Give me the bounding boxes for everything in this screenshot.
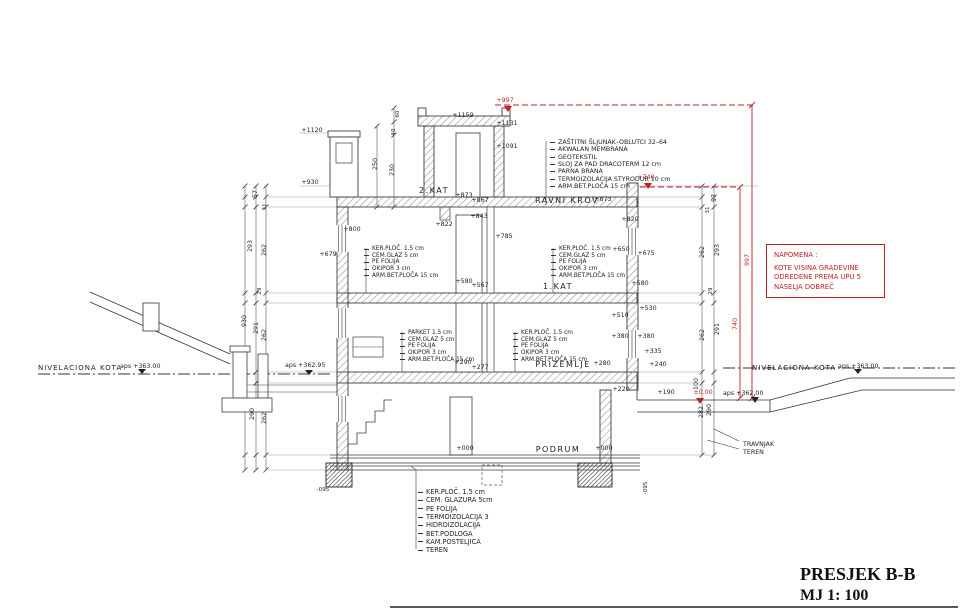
legend-item: CEM.GLAZ 5 cm [513,337,587,344]
room-podrum: PODRUM [536,445,581,454]
level-567: +567 [471,282,488,289]
drawing-scale: MJ 1: 100 [800,587,916,605]
legend-item: PE FOLIJA [400,343,474,350]
level-240: +240 [649,361,666,368]
legend-item: PE FOLIJA [513,343,587,350]
level-277: +277 [471,364,488,371]
level-000-right: +000 [595,445,612,452]
dim-291-left: 291 [253,322,260,334]
dim-262-left-a: 262 [261,244,268,256]
room-1kat: 1.KAT [543,282,573,291]
roof-buildup-legend: ZAŠTITNI ŠLJUNAK–OBLUTCI 32–64AKWALAN ME… [550,139,670,190]
floor-buildup-legend-1kat-right: KER.PLOČ. 1.5 cmCEM.GLAZ 5 cmPE FOLIJAOK… [551,246,625,279]
legend-item: PE FOLIJA [551,259,625,266]
strip-footing-dashed [482,465,502,485]
floor-slab-prizemlje [337,372,637,383]
level-380-a: +380 [611,333,628,340]
level-820: +820 [621,216,638,223]
dim-930: 930 [241,315,248,327]
dim-40: 40 [391,128,397,136]
legend-item: HIDROIZOLACIJA [418,521,493,529]
niv-right-value: aps +363.00 [838,363,878,370]
floor-buildup-legend-prizemlje-right: KER.PLOČ. 1.5 cmCEM.GLAZ 5 cmPE FOLIJAOK… [513,330,587,363]
level-580-right: +580 [631,280,648,287]
dim-57-left: 57 [252,190,259,198]
legend-item: PE FOLIJA [364,259,438,266]
aps-362-95: aps +362.95 [285,362,325,369]
footing-left [326,463,352,487]
dim-31-left: 31 [262,203,268,211]
footing-right [578,463,612,487]
legend-item: KOTE VISINA GRADEVINE [774,264,878,274]
level-1091: +1091 [496,143,517,150]
legend-item: PE FOLIJA [418,505,493,513]
legend-item: OKIPOR 3 cm [400,350,474,357]
beam [440,207,450,220]
legend-item: AKWALAN MEMBRANA [550,146,670,153]
level-997: +997 [496,97,513,104]
legend-item: KER.PLOČ. 1.5 cm [513,330,587,337]
legend-item: NAPOMENA : [774,251,878,261]
level-m095-right: -095 [643,481,649,494]
level-785: +785 [495,233,512,240]
legend-item: CEM.GLAZ 5 cm [551,253,625,260]
level-822: +822 [435,221,452,228]
legend-item: TERMOIZOLACIJA STYRODUR 10 cm [550,175,670,182]
basement-right-wall [600,390,611,463]
level-190: +190 [657,389,674,396]
sheet: +1120+930+1159+1131+1091+997+74025023060… [0,0,960,614]
podrum-stair [348,400,392,455]
legend-item: BET.PODLOGA [418,529,493,537]
level-1120: +1120 [301,127,322,134]
drawing-title: PRESJEK B-B [800,564,916,585]
dim-31-right: 31 [705,206,711,214]
niv-left-label: NIVELACIONA KOTA [38,364,122,372]
niv-left-value: aps +363.00 [120,363,160,370]
interior-wall-1kat [487,207,494,293]
level-675: +675 [637,250,654,257]
level-380-b: +380 [637,333,654,340]
legend-item: PARNA BRANA [550,168,670,175]
legend-item: ARM.BET.PLOČA 15 cm [400,356,474,363]
room-2kat: 2.KAT [419,186,449,195]
dim-290-left: 290 [249,408,256,420]
label-teren: TEREN [742,449,764,456]
legend-item: ZAŠTITNI ŠLJUNAK–OBLUTCI 32–64 [550,139,670,146]
penthouse-right-wall [494,126,504,197]
level-510: +510 [611,312,628,319]
dim-60: 60 [395,110,401,118]
floor-buildup-legend-1kat-left: KER.PLOČ. 1.5 cmCEM.GLAZ 5 cmPE FOLIJAOK… [364,246,438,279]
legend-item: TERMOIZOLACIJA 3 [418,513,493,521]
legend-item: ARM.BET.PLOČA 15 cm [364,272,438,279]
legend-item: GEOTEKSTIL [550,154,670,161]
legend-item: PARKET 1.5 cm [400,330,474,337]
retaining-wall [222,346,337,412]
legend-item: ODREDENE PREMA UPU 5 [774,273,878,283]
dim-29-left: 29 [257,287,263,295]
level-000-left: +000 [456,445,473,452]
niv-right-label: NIVELACIONA KOTA [752,364,836,372]
dim-997: 997 [744,254,751,266]
chimney-cap [328,131,360,137]
level-930: +930 [301,179,318,186]
dim-250: 250 [372,158,379,170]
level-280: +280 [593,360,610,367]
legend-item: KAM.POSTELJICA [418,538,493,546]
dim-291-right: 291 [714,323,721,335]
title-block: PRESJEK B-B MJ 1: 100 [800,564,916,605]
room-ravni-krov: RAVNI KROV [535,196,599,205]
legend-item: ARM.BET.PLOČA 15 cm [551,272,625,279]
interior-wall-prizemlje [487,303,494,372]
dim-262-right-a: 262 [699,246,706,258]
level-1131: +1131 [496,120,517,127]
legend-item: CEM.GLAZ 5 cm [400,337,474,344]
level-580-left: +580 [455,278,472,285]
dim-262-right-b: 262 [699,329,706,341]
dim-57-right: 57 [711,194,718,202]
penthouse-door [456,133,480,197]
dim-262-left-c: 262 [261,412,268,424]
dim-293-left: 293 [247,240,254,252]
note-box: NAPOMENA :KOTE VISINA GRADEVINEODREDENE … [766,244,885,298]
dim-282: 282 [698,406,705,418]
legend-item: OKIPOR 3 cm [513,350,587,357]
legend-item: ARM.BET.PLOČA 15 cm [513,356,587,363]
level-873: +873 [455,192,472,199]
legend-item: SLOJ ZA PAD DRACOTERM 12 cm [550,161,670,168]
legend-item: OKIPOR 3 cm [364,266,438,273]
dim-290-right: 290 [706,404,713,416]
legend-item: NASELJA DOBREČ [774,283,878,293]
level-zero: ±0.00 [693,389,712,396]
level-335: +335 [644,348,661,355]
dim-230: 230 [389,164,396,176]
legend-item: CEM.GLAZ 5 cm [364,253,438,260]
dim-740: 740 [732,318,739,330]
legend-item: KER.PLOČ. 1.5 cm [551,246,625,253]
level-1159: +1159 [452,112,473,119]
level-679: +679 [319,251,336,258]
legend-item: ARM.BET.PLOČA 15 cm [550,183,670,190]
label-travnjak: TRAVNJAK [742,441,775,448]
floor-slab-1kat [337,293,637,303]
level-873-roof: +873 [594,196,611,203]
dim-262-left-b: 262 [261,329,268,341]
level-800: +800 [343,226,360,233]
foundation-buildup-legend: KER.PLOČ. 1.5 cmCEM. GLAZURA 5cmPE FOLIJ… [418,488,493,554]
legend-item: KER.PLOČ. 1.5 cm [418,488,493,496]
level-843: +843 [470,213,487,220]
level-530: +530 [639,305,656,312]
dim-293-right: 293 [714,244,721,256]
legend-item: KER.PLOČ. 1.5 cm [364,246,438,253]
dim-29-right: 29 [708,287,714,295]
legend-item: CEM. GLAZURA 5cm [418,496,493,504]
floor-buildup-legend-prizemlje-left: PARKET 1.5 cmCEM.GLAZ 5 cmPE FOLIJAOKIPO… [400,330,474,363]
level-220: +220 [612,386,629,393]
legend-item: OKIPOR 3 cm [551,266,625,273]
level-867: +867 [471,197,488,204]
aps-362-00: aps +362.00 [723,390,763,397]
legend-item: TEREN [418,546,493,554]
level-m095-left: -095 [317,487,330,493]
